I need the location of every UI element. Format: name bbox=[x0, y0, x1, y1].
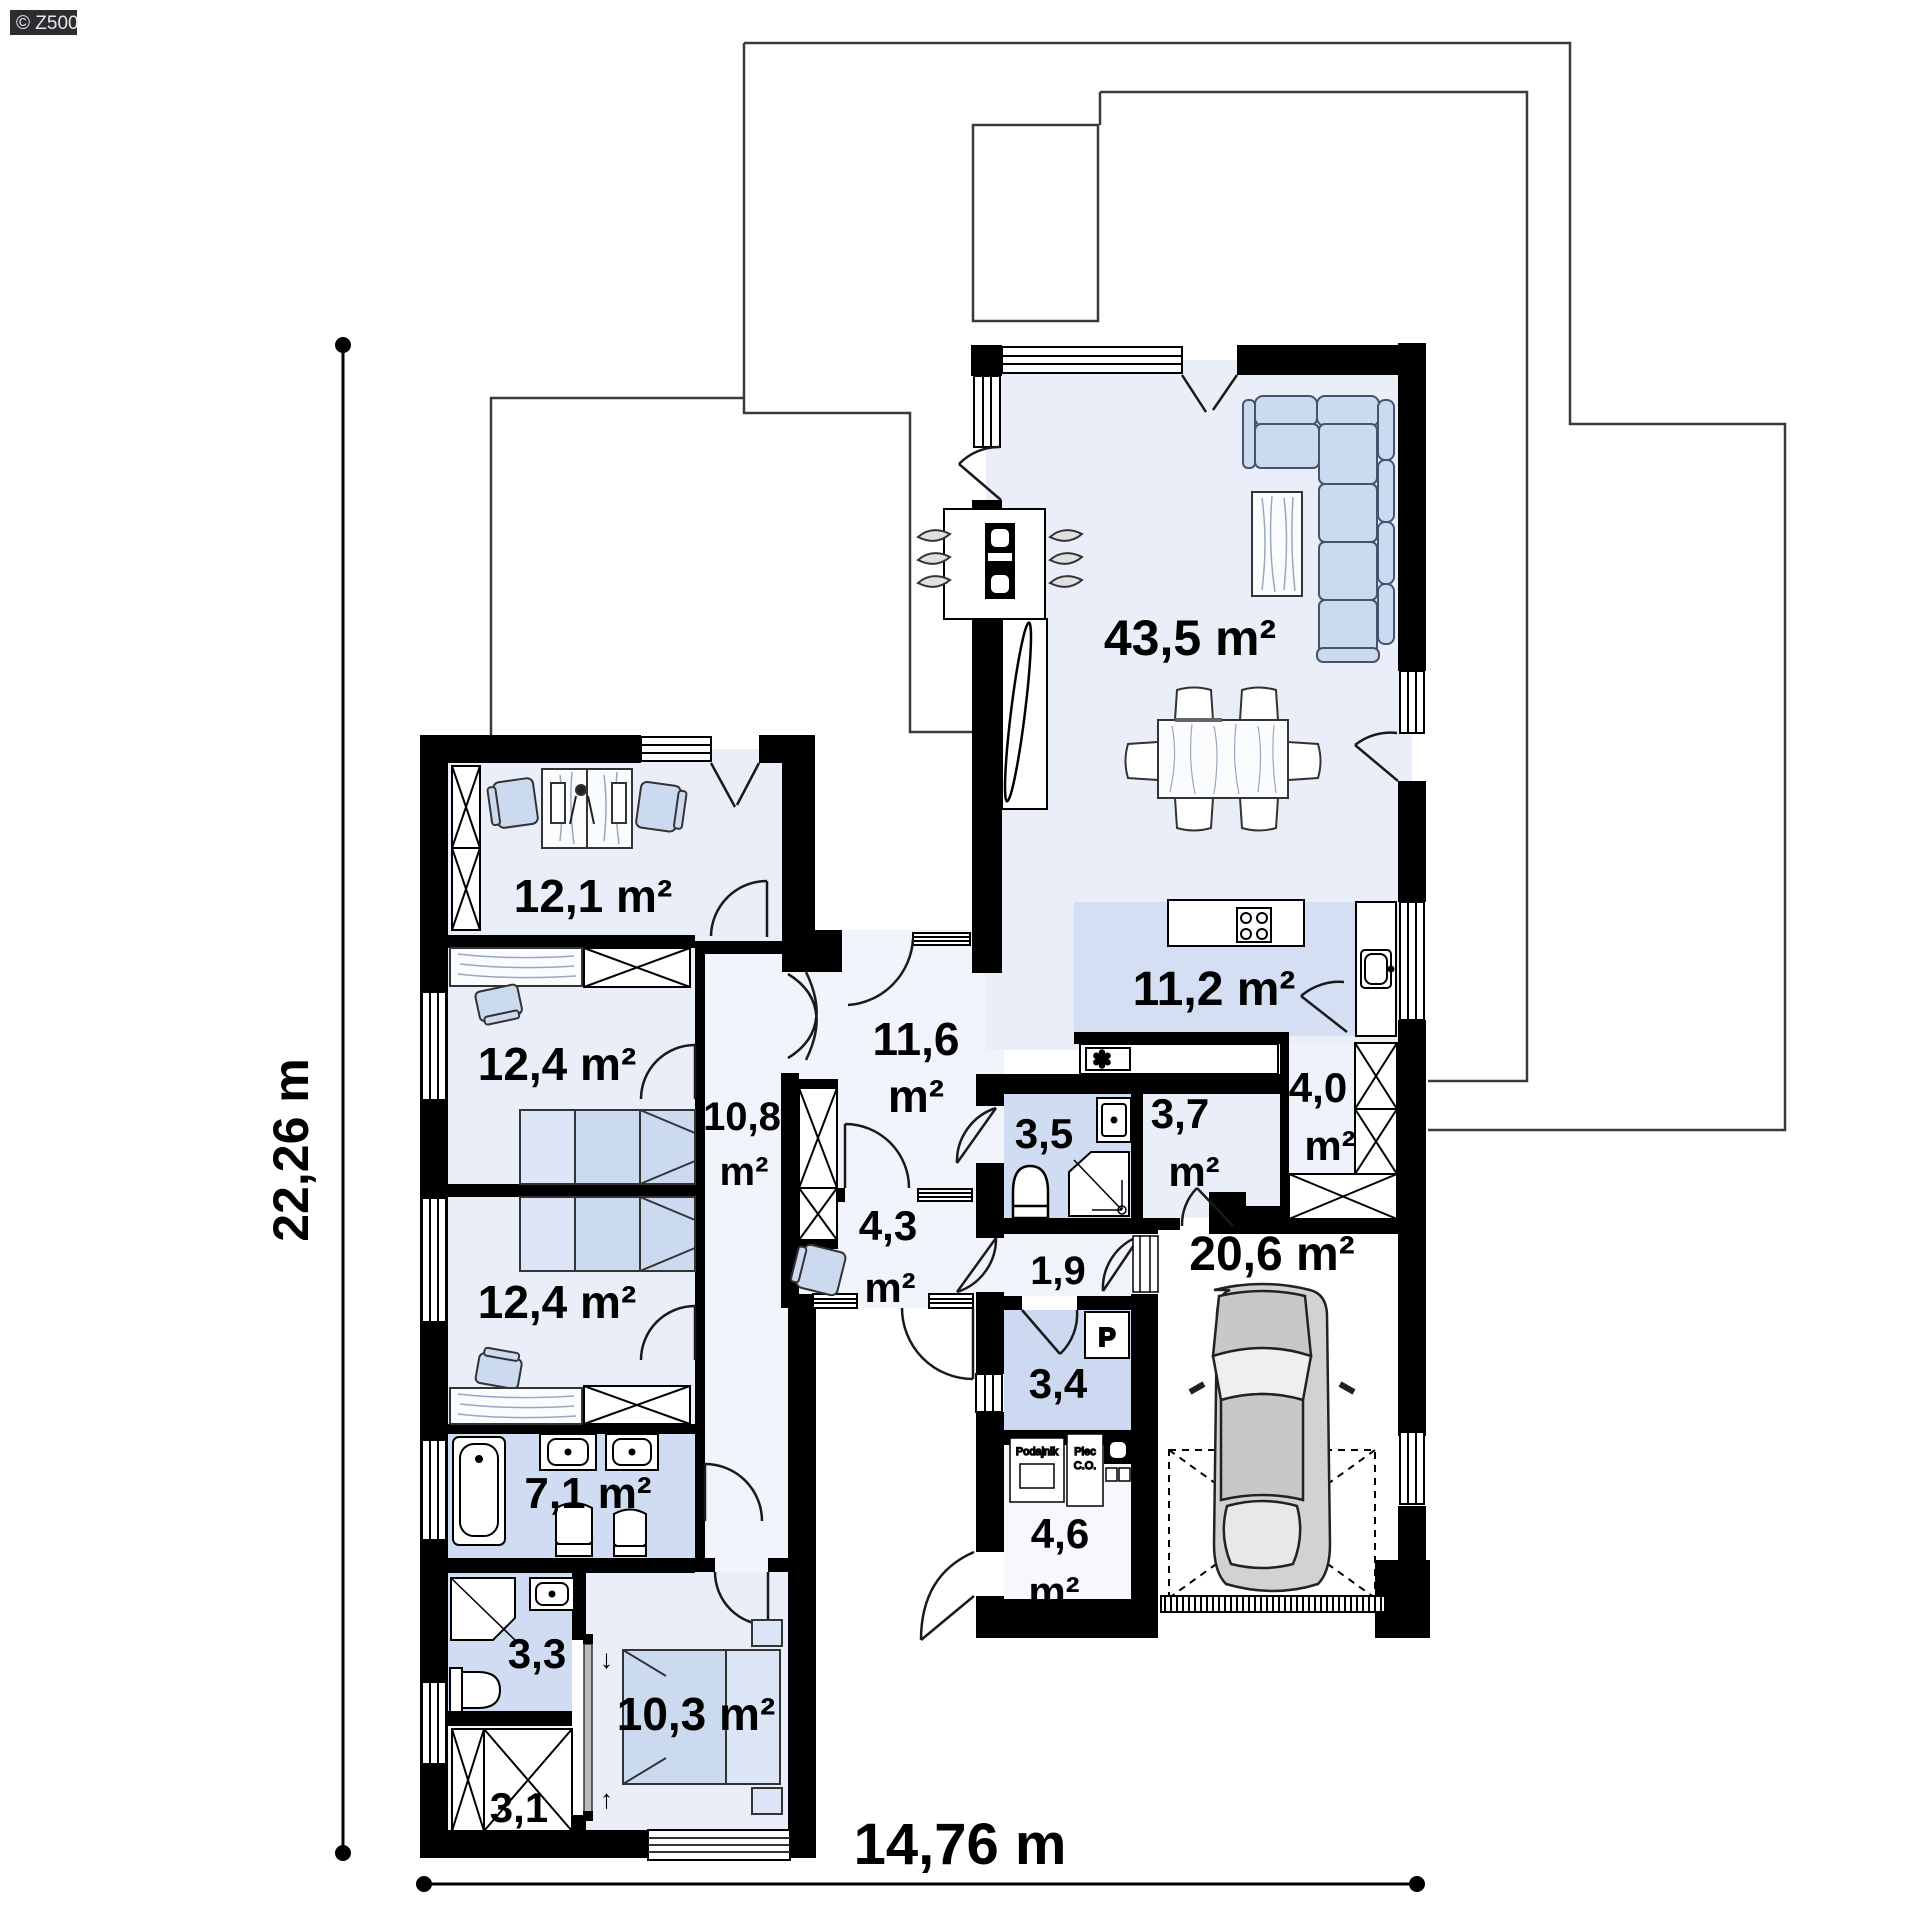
svg-text:m²: m² bbox=[1168, 1148, 1219, 1195]
svg-text:11,6: 11,6 bbox=[873, 1013, 960, 1065]
svg-text:4,6: 4,6 bbox=[1031, 1510, 1089, 1557]
svg-text:12,4 m²: 12,4 m² bbox=[478, 1038, 637, 1090]
svg-text:1,9: 1,9 bbox=[1030, 1249, 1086, 1293]
svg-text:P: P bbox=[1098, 1322, 1115, 1352]
svg-text:m²: m² bbox=[1304, 1122, 1355, 1169]
svg-text:4,3: 4,3 bbox=[859, 1202, 917, 1249]
svg-text:Piec: Piec bbox=[1074, 1446, 1096, 1458]
svg-text:m²: m² bbox=[888, 1070, 944, 1122]
svg-text:3,1: 3,1 bbox=[490, 1784, 548, 1831]
svg-text:10,3 m²: 10,3 m² bbox=[617, 1688, 776, 1740]
svg-text:12,4 m²: 12,4 m² bbox=[478, 1276, 637, 1328]
svg-text:12,1 m²: 12,1 m² bbox=[514, 870, 673, 922]
svg-text:20,6 m²: 20,6 m² bbox=[1189, 1228, 1354, 1281]
svg-text:7,1 m²: 7,1 m² bbox=[524, 1469, 651, 1518]
svg-text:✻: ✻ bbox=[1093, 1047, 1111, 1072]
svg-text:11,2 m²: 11,2 m² bbox=[1133, 963, 1296, 1016]
svg-text:C.O.: C.O. bbox=[1074, 1460, 1097, 1472]
svg-text:m²: m² bbox=[720, 1150, 769, 1194]
svg-text:10,8: 10,8 bbox=[703, 1095, 781, 1139]
svg-text:Podajnik: Podajnik bbox=[1016, 1446, 1059, 1458]
svg-text:43,5 m²: 43,5 m² bbox=[1104, 610, 1276, 666]
svg-text:3,7: 3,7 bbox=[1151, 1090, 1209, 1137]
svg-text:3,4: 3,4 bbox=[1029, 1360, 1088, 1407]
svg-text:m²: m² bbox=[1028, 1568, 1079, 1615]
svg-text:22,26 m: 22,26 m bbox=[263, 1058, 319, 1241]
svg-text:↓: ↓ bbox=[600, 1644, 613, 1674]
svg-text:m²: m² bbox=[864, 1264, 915, 1311]
svg-text:14,76 m: 14,76 m bbox=[854, 1812, 1067, 1877]
svg-text:4,0: 4,0 bbox=[1289, 1064, 1347, 1111]
svg-text:3,3: 3,3 bbox=[508, 1630, 566, 1677]
svg-text:© Z500: © Z500 bbox=[16, 13, 79, 34]
svg-text:3,5: 3,5 bbox=[1015, 1110, 1073, 1157]
svg-text:↑: ↑ bbox=[600, 1784, 613, 1814]
